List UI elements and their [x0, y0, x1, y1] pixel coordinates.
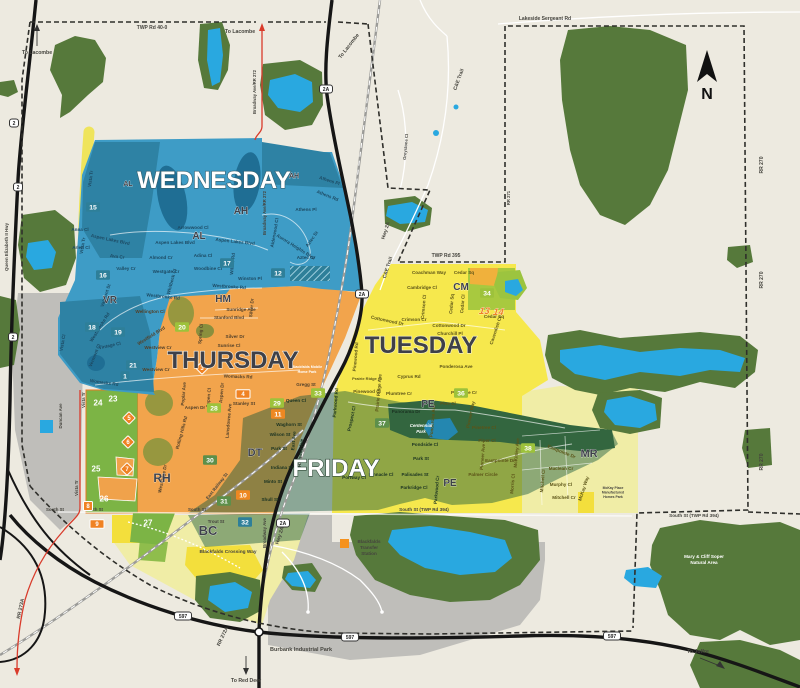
- neighborhood-code: PE: [443, 478, 457, 489]
- zone-number-badge: 28: [207, 403, 221, 413]
- street-label: Gregg St: [296, 382, 316, 387]
- highway-shield: 597: [175, 612, 192, 620]
- water-body: [454, 105, 459, 110]
- zone-34-orange-blob: [470, 268, 498, 286]
- landmark-label: Natural Area: [690, 560, 718, 565]
- zone-number-badge: 36: [454, 388, 468, 398]
- street-label: Eastpointe Dr: [485, 458, 515, 463]
- street-label: Pondside Cl: [412, 442, 439, 447]
- street-label: Prairie Ridge Cl: [352, 376, 382, 381]
- zone-number-label: 1: [123, 373, 127, 380]
- highway-shield-number: 2: [12, 335, 15, 341]
- road-label: RR 270: [759, 453, 765, 470]
- zone-number-badge: 33: [311, 388, 325, 398]
- highway-shield: 2: [9, 333, 18, 341]
- highway-shield: 2A: [277, 519, 290, 527]
- zone-number-badge: 10: [236, 490, 250, 500]
- road-label: TWP Rd 395: [432, 253, 461, 259]
- road-label: RR 270: [759, 156, 765, 173]
- zone-number-badge: 12: [271, 268, 285, 278]
- direction-label: To Red Deer: [231, 678, 261, 684]
- transfer-station-icon: [340, 539, 349, 548]
- zone-number-label: 24: [94, 398, 103, 407]
- zone-number-label: 25: [92, 464, 101, 473]
- street-label: Stanley St: [233, 401, 256, 406]
- zone-number-badge: 37: [375, 418, 389, 428]
- street-label: Crimson Cr: [401, 317, 426, 322]
- zone-number-badge: 16: [96, 270, 110, 280]
- zone-number-badge: 19: [111, 327, 125, 337]
- zone-number-label: 15: [89, 204, 97, 211]
- zone-number-label: 30: [206, 457, 214, 464]
- street-label: Cambridge Cl: [407, 285, 437, 290]
- road-label: RR 270: [759, 271, 765, 288]
- landmark-label: Transfer: [360, 545, 378, 550]
- day-zone-title: THURSDAY: [167, 347, 298, 374]
- street-label: Pinewood Cl: [353, 389, 381, 394]
- street-label: Anna Cl: [71, 227, 88, 232]
- street-label: Adina Cl: [194, 253, 213, 258]
- route-marker: 4: [236, 390, 250, 399]
- street-label: Cyprus Rd: [397, 374, 420, 379]
- street-label: Wellington Cl: [135, 309, 164, 314]
- zone-number-label: 12: [274, 270, 282, 277]
- highway-shield-number: 597: [179, 614, 188, 620]
- zone-number-label: 32: [241, 519, 249, 526]
- street-label: Almond Cr: [149, 255, 173, 260]
- street-label: Athens Pl: [295, 207, 316, 212]
- day-zone-title: TUESDAY: [365, 332, 477, 359]
- landmark-label: Station: [361, 551, 377, 556]
- zone-number-label: 36: [457, 390, 465, 397]
- road-label: South St: [188, 507, 207, 512]
- road-label: TWP Rd 40-0: [137, 25, 168, 31]
- zone-number-label: 28: [210, 405, 218, 412]
- street-label: Queen Cl: [286, 398, 306, 403]
- collection-schedule-map: N Vista TrAthens PlAthens RdAthens PlArr…: [0, 0, 800, 688]
- zone-number-label: 10: [239, 492, 247, 499]
- street-label: Shull St: [261, 497, 279, 502]
- street-label: Plumtree Cr: [386, 391, 412, 396]
- landmark-label: Burbank Industrial Park: [270, 647, 333, 653]
- highway-shield: 597: [342, 633, 359, 641]
- highway-shield-number: 597: [346, 635, 355, 641]
- neighborhood-code: MR: [580, 448, 597, 460]
- road-endpoint-dot: [306, 610, 310, 614]
- rh-park-pond-2: [143, 438, 173, 466]
- zone-number-label: 34: [483, 290, 491, 297]
- neighborhood-code: HM: [215, 294, 231, 305]
- zone-number-badge: 23: [109, 394, 118, 403]
- street-label: Ponderosa Ave: [439, 364, 473, 369]
- zone-number-badge: 21: [126, 360, 140, 370]
- neighborhood-code: PE: [421, 399, 435, 410]
- zone-number-label: 26: [100, 494, 109, 503]
- highway-shield-number: 597: [608, 634, 617, 640]
- direction-label: To Lacombe: [22, 50, 52, 56]
- neighborhood-code: AH: [234, 206, 248, 217]
- zone-number-badge: 27: [144, 518, 153, 527]
- neighborhood-code: BC: [199, 523, 218, 538]
- road-label: South St (TWP Rd 394): [669, 513, 719, 518]
- landmark-label: Home Park: [298, 370, 317, 374]
- street-label: Westview Cr: [142, 367, 169, 372]
- zone-number-label: 18: [88, 324, 96, 331]
- street-label: Minto St: [264, 479, 283, 484]
- neighborhood-code: VR: [103, 295, 118, 306]
- street-label: Silver Dr: [226, 334, 245, 339]
- zone-number-badge: 11: [271, 409, 285, 419]
- road-label: South St (TWP Rd 394): [399, 507, 449, 512]
- landmark-label: Park: [416, 429, 426, 434]
- zone-number-badge: 31: [217, 496, 231, 506]
- zone-number-badge: 30: [203, 455, 217, 465]
- street-label: Aspen Dr: [185, 405, 206, 410]
- zone-number-label: 11: [274, 411, 281, 418]
- landmark-label: Manufactured: [602, 491, 624, 495]
- zone-number-label: 38: [524, 445, 532, 452]
- landmark-label: Homes Park: [603, 495, 623, 499]
- street-label: Wilson St: [270, 432, 291, 437]
- highway-shield: 2: [10, 119, 19, 127]
- highway-shield-number: 2: [13, 121, 16, 127]
- street-label: Indiana St: [271, 465, 293, 470]
- zone-12-hatched-area: [290, 266, 330, 281]
- road-label: Vista Tr: [81, 392, 86, 408]
- street-label: Coachman Way: [412, 270, 446, 275]
- street-label: Park St: [271, 446, 287, 451]
- neighborhood-code: AL: [192, 231, 205, 242]
- water-body: [433, 130, 439, 136]
- zone-number-badge: 32: [238, 517, 252, 527]
- street-label: Palisades St: [401, 472, 429, 477]
- street-label: Pine Cl: [440, 401, 456, 406]
- zone-number-label: 29: [273, 400, 281, 407]
- landmark-label: Mary & Cliff Soper: [684, 554, 724, 559]
- road-label: Queen Elizabeth II Hwy: [4, 222, 9, 271]
- route-marker: 8: [84, 502, 93, 511]
- road-label: Blackfalds Crossing Way: [199, 549, 256, 555]
- highway-shield-number: 2A: [323, 87, 330, 93]
- road-label: South St: [46, 507, 65, 512]
- route-marker: 9: [90, 520, 104, 529]
- day-zone-title: FRIDAY: [292, 455, 379, 482]
- landmark-label: Centennial: [410, 423, 433, 428]
- highway-junction: [255, 628, 263, 636]
- zone-number-label: 23: [109, 394, 118, 403]
- highway-shield: 2: [14, 183, 23, 191]
- street-label: Aztec Cr: [297, 255, 316, 260]
- water-body: [40, 420, 53, 433]
- street-label: Valley Cr: [116, 266, 136, 271]
- landmark-label: McKay Place: [603, 486, 624, 490]
- zone-number-badge: 26: [100, 494, 109, 503]
- map-canvas: N Vista TrAthens PlAthens RdAthens PlArr…: [0, 0, 800, 688]
- zone-number-badge: 20: [175, 322, 189, 332]
- highway-shield-number: 2A: [359, 292, 366, 298]
- zone-number-badge: 15: [86, 202, 100, 212]
- street-label: Piper Cl: [478, 438, 495, 443]
- highway-shield-number: 2: [17, 185, 20, 191]
- street-label: Panorama Dr: [392, 409, 421, 414]
- street-label: Woodbine Cl: [194, 266, 222, 271]
- neighborhood-code: RH: [153, 471, 170, 485]
- zone-number-badge: 1: [121, 371, 130, 381]
- street-label: Pinetree Cl: [472, 425, 496, 430]
- highway-shield: 2A: [356, 290, 369, 298]
- street-label: Waghorn St: [276, 422, 302, 427]
- neighborhood-code: AL: [123, 181, 133, 188]
- zone-number-label: 19: [114, 329, 122, 336]
- zone-number-badge: 25: [92, 464, 101, 473]
- street-label: Parkridge Cl: [400, 485, 427, 490]
- zone-number-label: 17: [223, 260, 231, 267]
- highway-shield-number: 2A: [280, 521, 287, 527]
- street-label: Arrowwood Cl: [177, 225, 208, 230]
- direction-label: To Lacombe: [225, 29, 255, 35]
- zone-number-label: 27: [144, 518, 153, 527]
- street-label: Park St: [413, 456, 429, 461]
- forest-patch: [742, 428, 772, 468]
- street-label: Cedar Sq: [454, 270, 474, 275]
- zone-number-badge: 34: [480, 288, 494, 298]
- neighborhood-code: CM: [453, 282, 469, 293]
- street-label: Palmer Circle: [468, 472, 498, 477]
- zone-number-label: 21: [129, 362, 137, 369]
- zone-number-label: 31: [220, 498, 228, 505]
- highway-shield: 2A: [320, 85, 333, 93]
- zone-number-badge: 38: [521, 443, 535, 453]
- direction-label: To Joffre: [687, 649, 709, 655]
- road-label: Vista Tr: [74, 480, 79, 496]
- zone-number-badge: 17: [220, 258, 234, 268]
- street-label: Stanford Blvd: [214, 315, 244, 320]
- day-zone-title: WEDNESDAY: [137, 167, 291, 194]
- zone-number-label: 37: [378, 420, 386, 427]
- road-label: Broadway Ave: [262, 517, 267, 547]
- road-label: RR 271: [506, 190, 511, 205]
- zone-number-label: 16: [99, 272, 107, 279]
- street-label: Maclean Cr: [549, 466, 574, 471]
- neighborhood-code: DT: [248, 447, 263, 459]
- zone-number-badge: 24: [94, 398, 103, 407]
- zone-number-badge: 18: [85, 322, 99, 332]
- street-label: Mitchell Cr: [552, 495, 576, 500]
- street-label: Aspen Lakes Blvd: [155, 240, 195, 245]
- road-label: Lakeside Sergeant Rd: [519, 16, 571, 22]
- zone-number-badge: 29: [270, 398, 284, 408]
- street-label: Winston Pl: [238, 276, 262, 281]
- zone-number-label: 20: [178, 324, 186, 331]
- road-endpoint-dot: [380, 610, 384, 614]
- north-label: N: [701, 86, 713, 103]
- street-label: Murphy Cl: [550, 482, 572, 487]
- highway-shield: 597: [604, 632, 621, 640]
- street-label: Womacks Rd: [224, 374, 253, 380]
- road-label: Broadway Ave/RR 272: [262, 190, 267, 235]
- landmark-label: Blackfalds: [358, 539, 381, 544]
- street-label: Cottonwood Dr: [432, 323, 465, 328]
- road-label: Broadway Ave/RR 272: [252, 69, 257, 114]
- zone-number-label: 33: [314, 390, 322, 397]
- road-label: Duncan Ave: [58, 403, 63, 429]
